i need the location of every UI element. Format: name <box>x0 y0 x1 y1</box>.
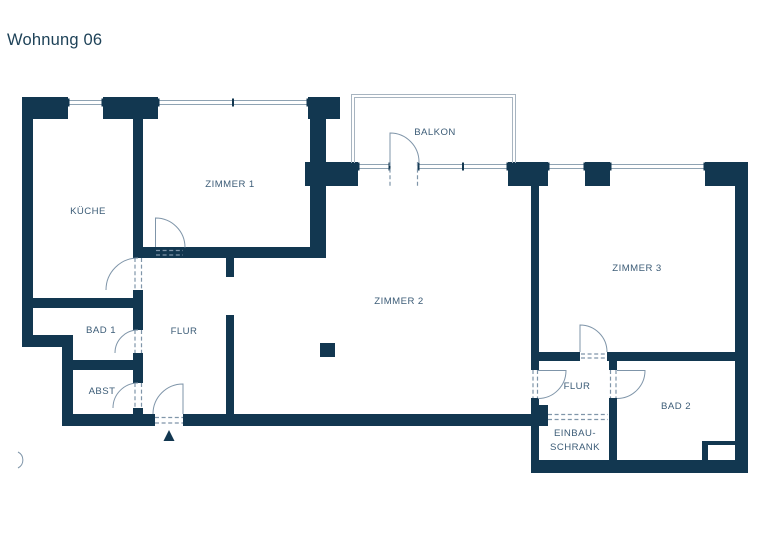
door-balkon <box>390 133 419 186</box>
label-balkon: BALKON <box>414 127 456 138</box>
wall <box>226 315 234 420</box>
wall <box>308 97 340 119</box>
door-entrance <box>153 384 183 441</box>
door-bad1 <box>115 330 142 353</box>
window-zimmer3-b <box>610 165 705 169</box>
wall <box>22 97 33 347</box>
door-kueche <box>106 258 142 290</box>
column <box>320 343 335 357</box>
windows-layer <box>68 99 705 171</box>
label-kueche: KÜCHE <box>70 206 106 217</box>
wall <box>609 398 617 473</box>
wall <box>585 162 610 186</box>
wall <box>531 352 580 361</box>
wall <box>133 408 143 426</box>
wall <box>531 186 539 370</box>
wall <box>702 441 735 445</box>
wall <box>22 335 73 347</box>
label-bad1: BAD 1 <box>86 325 116 336</box>
wall <box>609 360 617 370</box>
window-ticks <box>69 99 705 171</box>
door-zimmer3 <box>580 325 607 358</box>
floorplan-page: Wohnung 06 <box>0 0 768 560</box>
door-flur2 <box>533 370 566 399</box>
entrance-arrow-icon <box>164 430 175 441</box>
label-bad2: BAD 2 <box>661 401 691 412</box>
wall <box>607 352 735 361</box>
wall <box>226 253 234 277</box>
wall <box>538 405 548 426</box>
wall <box>508 162 548 186</box>
label-abst: ABST <box>89 386 116 397</box>
wall <box>735 186 748 473</box>
wall <box>705 162 748 186</box>
label-zimmer2: ZIMMER 2 <box>374 296 423 307</box>
label-flur: FLUR <box>171 326 198 337</box>
label-einbauschrank-line2: SCHRANK <box>550 442 600 453</box>
door-abst <box>113 383 142 408</box>
window-zimmer3-a <box>548 165 585 169</box>
walls-layer <box>22 97 748 473</box>
wall <box>103 97 158 119</box>
wall <box>133 119 143 247</box>
window-kueche <box>68 101 103 105</box>
wall <box>310 119 326 258</box>
wall <box>305 162 358 186</box>
wall <box>531 398 539 473</box>
label-zimmer1: ZIMMER 1 <box>205 179 254 190</box>
closet-front <box>548 415 608 420</box>
window-zimmer2-left <box>358 165 390 169</box>
label-einbauschrank-line1: EINBAU- <box>554 428 596 439</box>
wall <box>133 290 143 330</box>
wall <box>22 298 143 308</box>
wall <box>531 460 748 473</box>
label-flur2: FLUR <box>564 381 591 392</box>
floorplan-drawing: KÜCHE ZIMMER 1 BALKON ZIMMER 2 ZIMMER 3 … <box>0 0 768 560</box>
adjacent-door-arc-fragment <box>18 452 23 468</box>
wall <box>183 414 531 426</box>
wall <box>702 445 708 460</box>
label-zimmer3: ZIMMER 3 <box>612 263 661 274</box>
wall <box>62 360 143 370</box>
door-bad2 <box>611 370 646 399</box>
